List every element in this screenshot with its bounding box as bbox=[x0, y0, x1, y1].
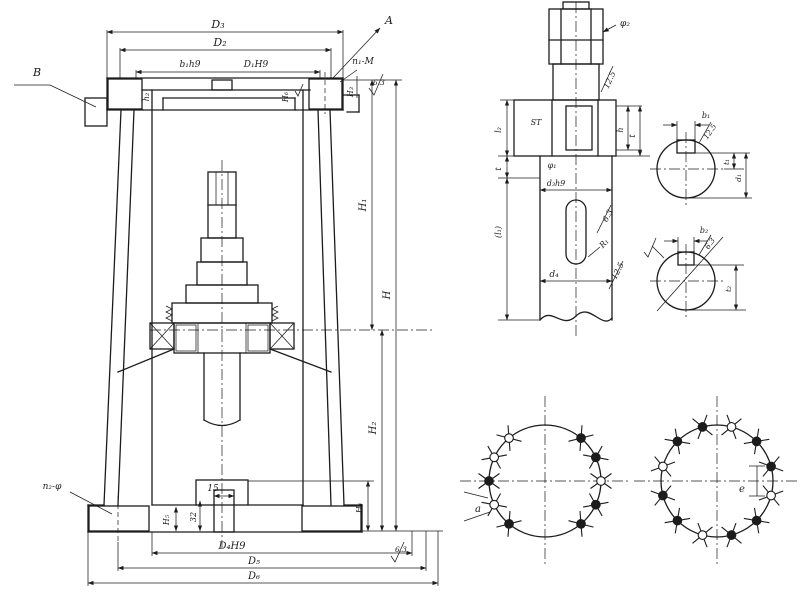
housing-outline bbox=[88, 78, 362, 532]
roughness-bottom-value: 6.3 bbox=[395, 545, 407, 554]
dim-label-d2: D₂ bbox=[212, 36, 226, 49]
dim-label-d4h9: D₄H9 bbox=[217, 541, 246, 552]
shaft-detail-view: φ₂ 12.5 ST φ₁ d₃h9 h t 6.3 R₁ d₄ 12.5 l₂… bbox=[494, 2, 650, 338]
dim-label-d1h9: D₁H9 bbox=[243, 60, 269, 70]
dim-label-shaft-t-right: t bbox=[628, 134, 637, 138]
dim-label-b2: b₂ bbox=[700, 226, 708, 235]
dim-label-d3: D₃ bbox=[210, 18, 224, 31]
dim-label-32: 32 bbox=[189, 512, 198, 522]
view-b-leader bbox=[14, 85, 96, 107]
shaft-section-upper: b₁ 12.5 t₁ d₁ bbox=[650, 111, 752, 208]
extension-lines bbox=[88, 30, 443, 586]
dim-label-h5: H₅ bbox=[162, 514, 171, 526]
dim-label-phi1: φ₁ bbox=[548, 161, 557, 170]
dim-label-h6: H₆ bbox=[281, 91, 290, 103]
dim-label-shaft-h: h bbox=[616, 127, 625, 132]
bolt-spacing-a-label: a bbox=[475, 504, 481, 515]
dim-label-d4: d₄ bbox=[549, 270, 559, 280]
dim-label-phi2: φ₂ bbox=[620, 19, 630, 29]
technical-drawing-canvas: D₃ D₂ b₁h9 D₁H9 h₂ H₆ H₃ n₁-M 6.3 A B H₁… bbox=[0, 0, 804, 604]
bolt-circle-right: e bbox=[634, 396, 800, 566]
surface-roughness-flag-icon bbox=[644, 238, 656, 257]
section-lower-dims bbox=[652, 235, 746, 310]
flange-bore-keyway bbox=[212, 80, 232, 90]
shaft-outline bbox=[514, 2, 616, 321]
main-sectional-view: D₃ D₂ b₁h9 D₁H9 h₂ H₆ H₃ n₁-M 6.3 A B H₁… bbox=[14, 14, 443, 586]
dim-label-d5: D₅ bbox=[247, 556, 260, 567]
bolt-note-bottom-label: n₂-φ bbox=[43, 482, 62, 492]
dim-label-h: H bbox=[382, 290, 393, 300]
dim-label-d6: D₆ bbox=[247, 571, 260, 582]
dim-label-t-left: t bbox=[494, 167, 503, 171]
dim-label-h2-small: h₂ bbox=[142, 93, 151, 101]
dim-label-b1h9: b₁h9 bbox=[180, 60, 201, 70]
bolt-spacing-e-label: e bbox=[739, 484, 745, 495]
section-cut-line bbox=[657, 237, 723, 311]
drawing-svg: D₃ D₂ b₁h9 D₁H9 h₂ H₆ H₃ n₁-M 6.3 A B H₁… bbox=[0, 0, 804, 604]
dim-label-h3: H₃ bbox=[346, 87, 355, 98]
shaft-extension-lines bbox=[498, 100, 650, 320]
bolt-left-spacing-line-1 bbox=[464, 492, 488, 498]
view-a-label: A bbox=[384, 14, 393, 27]
shaft-section-lower: b₂ 6.3 t₂ bbox=[644, 226, 746, 318]
section-lower-roughness: 6.3 bbox=[703, 236, 717, 251]
dim-label-15: 15 bbox=[207, 484, 219, 494]
dim-label-t2: t₂ bbox=[724, 286, 733, 292]
dim-label-h4: H₄ bbox=[355, 503, 364, 514]
roughness-top-value: 6.3 bbox=[373, 78, 385, 87]
dim-label-b1: b₁ bbox=[702, 111, 710, 120]
view-b-label: B bbox=[32, 66, 41, 79]
shaft-st-mark: ST bbox=[531, 118, 542, 127]
dimension-lines bbox=[88, 32, 438, 583]
bolt-note-top-label: n₁-M bbox=[352, 57, 374, 67]
dim-label-t1: t₁ bbox=[722, 159, 731, 165]
dim-label-sec-d1: d₁ bbox=[734, 174, 743, 182]
bolt-note-bottom-leader bbox=[70, 492, 112, 514]
dim-label-h2: H₂ bbox=[368, 422, 379, 436]
dim-label-h1: H₁ bbox=[358, 199, 369, 213]
dim-label-d3h9: d₃h9 bbox=[547, 179, 566, 188]
dim-label-l1: (l₁) bbox=[494, 226, 503, 238]
roughness-keyway-value: 6.3 bbox=[601, 208, 615, 223]
dim-label-r1: R₁ bbox=[597, 237, 611, 251]
shaft-and-gear-assembly bbox=[118, 172, 331, 426]
bolt-circle-left: a bbox=[460, 396, 630, 566]
roughness-upper-value: 12.5 bbox=[602, 70, 618, 90]
dim-label-l2: l₂ bbox=[494, 127, 503, 133]
